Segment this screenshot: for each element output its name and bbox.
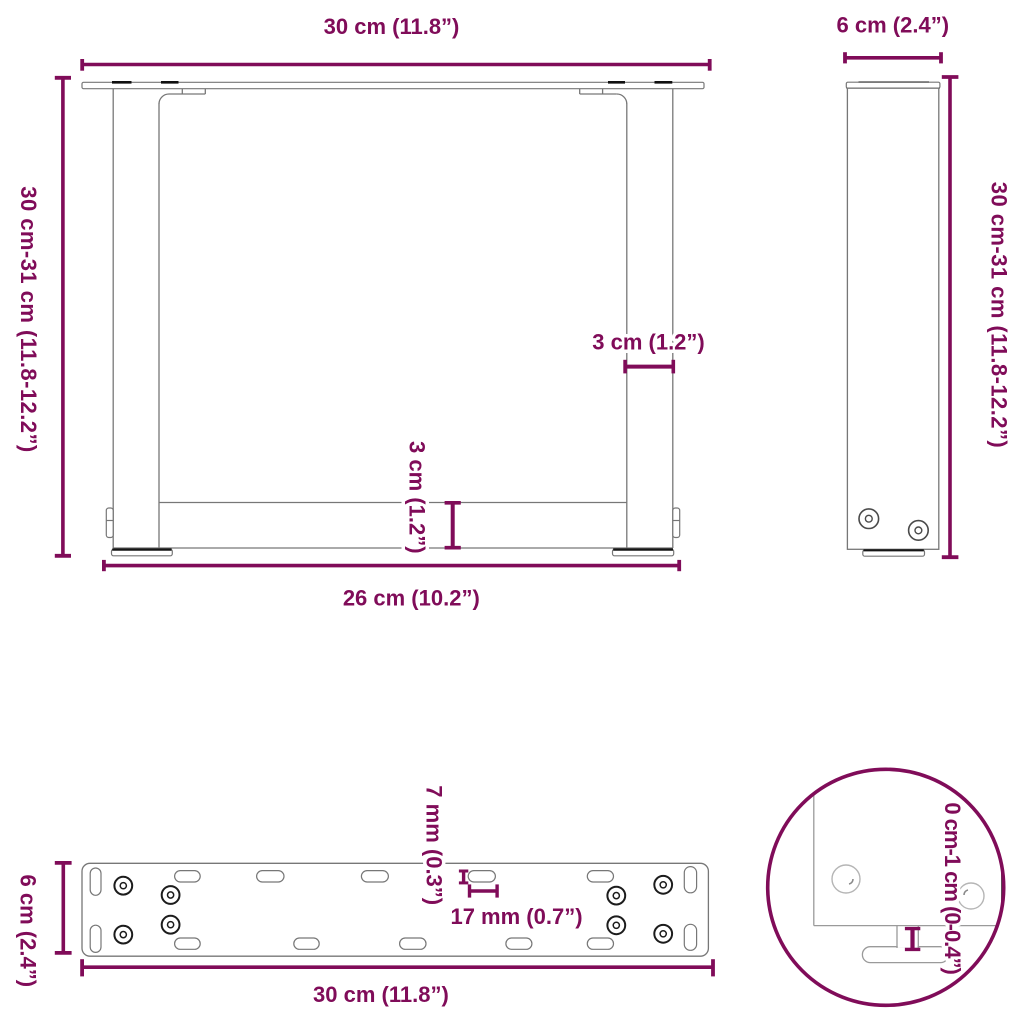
svg-text:30 cm-31 cm (11.8-12.2”): 30 cm-31 cm (11.8-12.2”): [16, 186, 41, 452]
svg-text:3 cm (1.2”): 3 cm (1.2”): [592, 329, 705, 354]
svg-text:6 cm (2.4”): 6 cm (2.4”): [15, 875, 40, 988]
svg-text:3 cm (1.2”): 3 cm (1.2”): [405, 441, 430, 554]
svg-text:30 cm (11.8”): 30 cm (11.8”): [313, 982, 449, 1007]
svg-text:30 cm (11.8”): 30 cm (11.8”): [324, 14, 460, 39]
svg-text:17 mm (0.7”): 17 mm (0.7”): [450, 904, 582, 929]
svg-text:0 cm-1 cm (0-0.4”): 0 cm-1 cm (0-0.4”): [940, 802, 965, 974]
svg-text:6 cm (2.4”): 6 cm (2.4”): [837, 13, 950, 38]
svg-text:26 cm (10.2”): 26 cm (10.2”): [343, 586, 480, 611]
svg-text:30 cm-31 cm (11.8-12.2”): 30 cm-31 cm (11.8-12.2”): [987, 182, 1012, 448]
svg-text:7 mm (0.3”): 7 mm (0.3”): [422, 785, 447, 905]
